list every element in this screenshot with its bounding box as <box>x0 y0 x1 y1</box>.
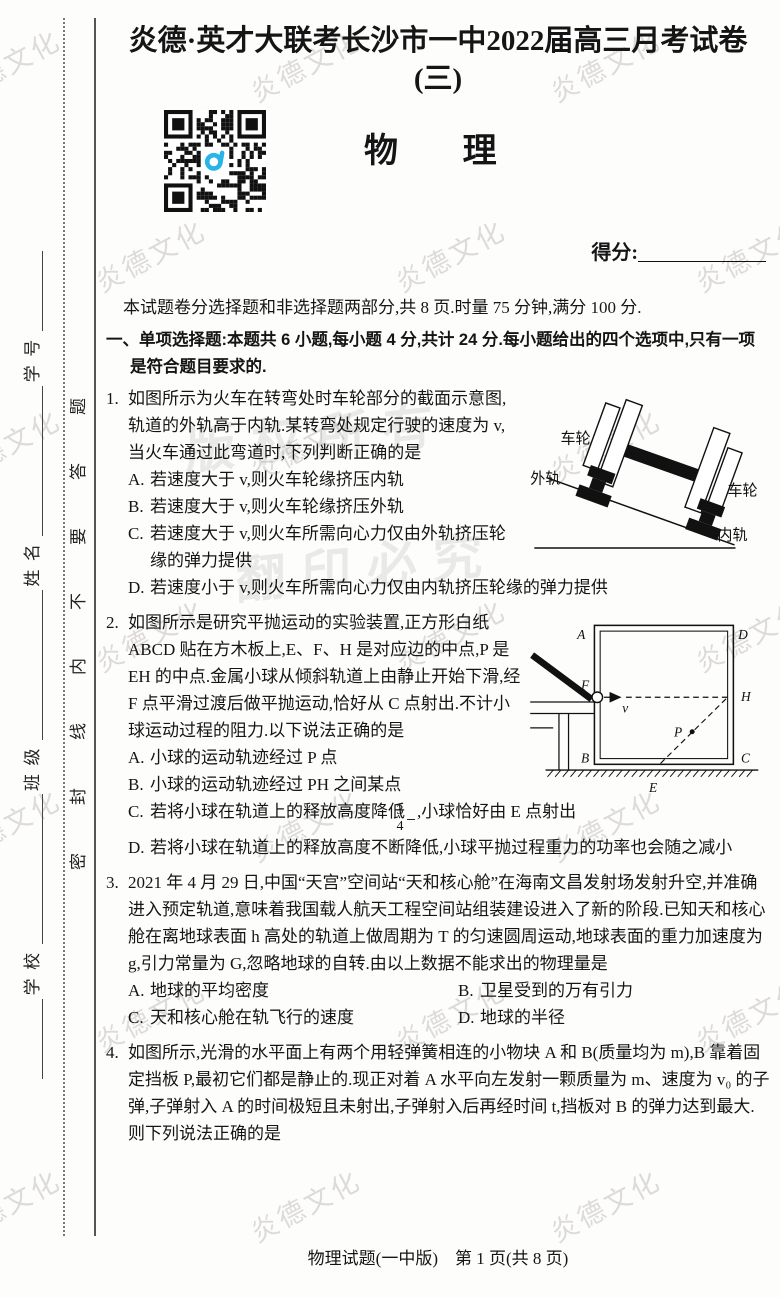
fig2-label-P: P <box>673 725 682 740</box>
score-field: 得分: <box>591 240 766 267</box>
field-blank-class <box>22 590 43 740</box>
exam-page: 版权所有 翻印必究 炎德文化炎德文化炎德文化炎德文化炎德文化炎德文化炎德文化炎德… <box>0 0 780 1298</box>
fraction-denominator: 4 <box>407 820 415 835</box>
fig2-label-B: B <box>581 750 589 765</box>
fig2-label-H: H <box>740 689 752 704</box>
option-label: D. <box>128 574 150 601</box>
question-stem-text: 如图所示为火车在转弯处时车轮部分的截面示意图,轨道的外轨高于内轨.某转弯处规定行… <box>128 389 506 462</box>
paper-content: 炎德·英才大联考长沙市一中2022届高三月考试卷(三) 物 理 得分: 本试题卷… <box>106 18 770 1155</box>
page-footer: 物理试题(一中版) 第 1 页(共 8 页) <box>106 1244 770 1269</box>
option-text: 若速度大于 v,则火车所需向心力仅由外轨挤压轮缘的弹力提供 <box>150 524 506 570</box>
field-label-school: 学校 <box>23 944 42 998</box>
option-text-after: ,小球恰好由 E 点射出 <box>417 802 576 821</box>
question-2: A D F H B C E P v 2.如图所示是研究平抛运动的实验装置,正方形… <box>106 609 770 861</box>
option-text: 若速度大于 v,则火车轮缘挤压内轨 <box>150 470 404 489</box>
option-row-c: C.若将小球在轨道上的释放高度降低34,小球恰好由 E 点射出 <box>128 798 770 834</box>
exam-intro: 本试题卷分选择题和非选择题两部分,共 8 页.时量 75 分钟,满分 100 分… <box>106 294 770 321</box>
fig1-label-wheel-right: 车轮 <box>727 483 757 500</box>
watermark-text: 炎德文化 <box>243 1159 367 1250</box>
field-blank-student-id <box>22 251 43 331</box>
fig2-label-v: v <box>622 701 628 716</box>
paper-title: 炎德·英才大联考长沙市一中2022届高三月考试卷(三) <box>106 22 770 98</box>
option-row-b: B.卫星受到的万有引力 <box>458 977 770 1004</box>
option-label: B. <box>128 493 150 520</box>
option-label: A. <box>128 977 150 1004</box>
option-text: 小球的运动轨迹经过 PH 之间某点 <box>150 775 401 794</box>
score-label: 得分: <box>591 242 638 264</box>
fig2-label-D: D <box>737 627 748 642</box>
option-text: 卫星受到的万有引力 <box>480 981 633 1000</box>
option-text: 若将小球在轨道上的释放高度不断降低,小球平抛过程重力的功率也会随之减小 <box>150 838 732 857</box>
field-label-class: 班级 <box>23 740 42 794</box>
question-3-options: A.地球的平均密度 B.卫星受到的万有引力 C.天和核心舱在轨飞行的速度 D.地… <box>128 977 770 1031</box>
header-zone: 物 理 得分: <box>106 98 770 294</box>
question-4: 4.如图所示,光滑的水平面上有两个用轻弹簧相连的小物块 A 和 B(质量均为 m… <box>106 1039 770 1147</box>
option-label: A. <box>128 466 150 493</box>
question-number: 4. <box>106 1039 128 1066</box>
fig1-label-wheel-left: 车轮 <box>560 430 590 447</box>
option-text: 若速度小于 v,则火车所需向心力仅由内轨挤压轮缘的弹力提供 <box>150 578 608 597</box>
fig2-label-F: F <box>580 678 590 693</box>
option-label: C. <box>128 798 150 825</box>
seal-dotted-line <box>63 18 65 1236</box>
question-stem-text: 如图所示,光滑的水平面上有两个用轻弹簧相连的小物块 A 和 B(质量均为 m),… <box>128 1043 770 1143</box>
fraction-numerator: 3 <box>407 804 415 820</box>
question-3-stem: 3.2021 年 4 月 29 日,中国“天宫”空间站“天和核心舱”在海南文昌发… <box>106 869 770 977</box>
field-label-student-id: 学号 <box>23 331 42 385</box>
question-4-stem: 4.如图所示,光滑的水平面上有两个用轻弹簧相连的小物块 A 和 B(质量均为 m… <box>106 1039 770 1147</box>
option-label: D. <box>128 834 150 861</box>
field-blank-school <box>22 794 43 944</box>
option-text: 若速度大于 v,则火车轮缘挤压外轨 <box>150 497 404 516</box>
option-text-before: 若将小球在轨道上的释放高度降低 <box>150 802 405 821</box>
fig2-label-A: A <box>576 627 586 642</box>
option-row-d: D.若将小球在轨道上的释放高度不断降低,小球平抛过程重力的功率也会随之减小 <box>128 834 770 861</box>
option-text: 天和核心舱在轨飞行的速度 <box>150 1008 354 1027</box>
option-label: A. <box>128 744 150 771</box>
field-blank-name <box>22 386 43 536</box>
watermark-text: 炎德文化 <box>543 1159 667 1250</box>
question-2-figure: A D F H B C E P v <box>530 611 770 795</box>
option-row-a: A.地球的平均密度 <box>128 977 458 1004</box>
option-label: B. <box>458 977 480 1004</box>
section-heading: 一、单项选择题:本题共 6 小题,每小题 4 分,共计 24 分.每小题给出的四… <box>106 327 770 381</box>
question-number: 1. <box>106 385 128 412</box>
field-blank <box>22 999 43 1079</box>
watermark-text: 炎德文化 <box>0 19 67 110</box>
option-label: C. <box>128 1004 150 1031</box>
student-info-strip: 学校班级姓名学号 <box>20 120 46 1210</box>
option-row-d: D.地球的半径 <box>458 1004 770 1031</box>
question-stem-text: 2021 年 4 月 29 日,中国“天宫”空间站“天和核心舱”在海南文昌发射场… <box>128 873 766 973</box>
score-blank <box>638 241 766 262</box>
seal-text: 密封线内不要答题 <box>67 350 91 870</box>
fig2-label-C: C <box>741 750 751 765</box>
seal-solid-line <box>94 18 96 1236</box>
question-3: 3.2021 年 4 月 29 日,中国“天宫”空间站“天和核心舱”在海南文昌发… <box>106 869 770 1031</box>
option-label: C. <box>128 520 150 547</box>
option-text: 地球的半径 <box>480 1008 565 1027</box>
option-text: 地球的平均密度 <box>150 981 269 1000</box>
option-label: D. <box>458 1004 480 1031</box>
subject-title: 物 理 <box>106 138 770 165</box>
question-1: 车轮 外轨 车轮 内轨 1.如图所示为火车在转弯处时车轮部分的截面示意图,轨道的… <box>106 385 770 601</box>
question-1-figure: 车轮 外轨 车轮 内轨 <box>528 387 770 556</box>
question-stem-text: 如图所示是研究平抛运动的实验装置,正方形白纸 ABCD 贴在方木板上,E、F、H… <box>128 613 520 740</box>
option-text: 小球的运动轨迹经过 P 点 <box>150 748 337 767</box>
field-label-name: 姓名 <box>23 536 42 590</box>
question-number: 2. <box>106 609 128 636</box>
fig2-label-E: E <box>648 780 657 795</box>
option-row-d: D.若速度小于 v,则火车所需向心力仅由内轨挤压轮缘的弹力提供 <box>128 574 770 601</box>
option-label: B. <box>128 771 150 798</box>
fig1-label-inner-rail: 内轨 <box>717 527 747 544</box>
option-row-c: C.天和核心舱在轨飞行的速度 <box>128 1004 458 1031</box>
fraction: 34 <box>407 804 415 834</box>
question-number: 3. <box>106 869 128 896</box>
fig1-label-outer-rail: 外轨 <box>530 471 560 488</box>
